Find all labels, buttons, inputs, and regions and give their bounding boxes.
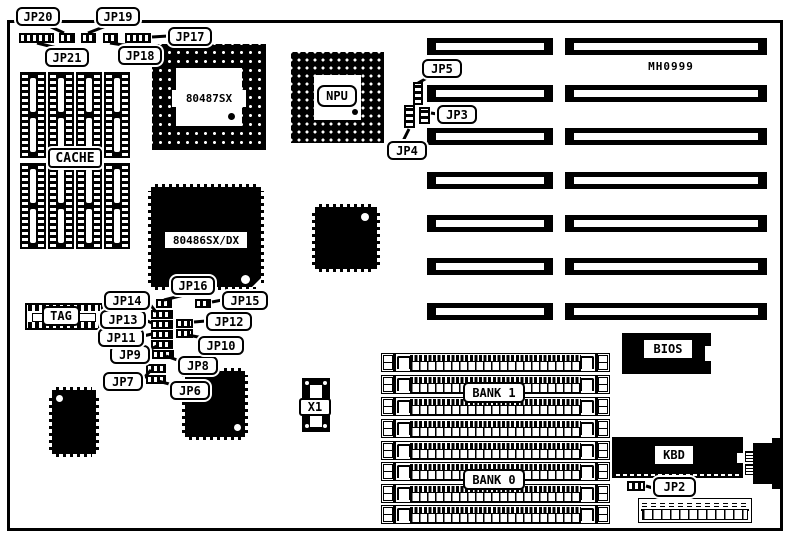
slot-opening bbox=[436, 263, 544, 270]
dip-pins bbox=[122, 165, 128, 247]
jumper-pins bbox=[83, 35, 94, 41]
dip-window bbox=[114, 78, 120, 112]
jumper-callout-jp3: JP3 bbox=[437, 105, 477, 124]
isa-slot-short bbox=[427, 38, 553, 55]
jumper-pins bbox=[21, 35, 52, 41]
cache-dip-chip bbox=[20, 163, 46, 249]
simm-end-hole bbox=[598, 450, 608, 458]
simm-latch bbox=[397, 356, 411, 369]
npu-socket: NPU bbox=[291, 52, 384, 143]
jumper-callout-jp14: JP14 bbox=[104, 291, 150, 310]
simm-module-cells bbox=[410, 449, 581, 459]
isa-slot-long bbox=[565, 258, 767, 275]
simm-end-bar bbox=[393, 354, 396, 371]
jumper-callout-jp13: JP13 bbox=[100, 310, 146, 329]
isa-slot-short bbox=[427, 85, 553, 102]
jumper-callout-jp10: JP10 bbox=[198, 336, 244, 355]
simm-end-bar bbox=[595, 354, 598, 371]
qfp-chip-bottom-left bbox=[52, 390, 96, 454]
cache-label: CACHE bbox=[48, 148, 102, 168]
jumper-callout-jp8: JP8 bbox=[178, 356, 218, 375]
simm-socket bbox=[381, 505, 610, 524]
keyboard-din-connector-flange bbox=[772, 438, 783, 489]
slot-opening bbox=[436, 43, 544, 50]
simm-latch bbox=[397, 465, 411, 478]
isa-slot-long bbox=[565, 303, 767, 320]
cache-dip-chip bbox=[76, 72, 102, 158]
isa-slot-short bbox=[427, 303, 553, 320]
simm-end-hole bbox=[598, 514, 608, 522]
simm-end-hole bbox=[598, 362, 608, 370]
kbd-label: KBD bbox=[655, 446, 693, 464]
simm-end-bar bbox=[595, 485, 598, 502]
simm-end-hole bbox=[383, 384, 393, 392]
jumper-pins bbox=[148, 377, 164, 382]
simm-end-bar bbox=[393, 506, 396, 523]
simm-end-bar bbox=[595, 398, 598, 415]
jumper-callout-jp16: JP16 bbox=[171, 276, 215, 295]
dip-window bbox=[58, 169, 64, 203]
simm-end-hole bbox=[383, 428, 393, 436]
jumper-block-jp9 bbox=[151, 340, 173, 349]
simm-end-hole bbox=[383, 362, 393, 370]
jumper-block-jp11 bbox=[151, 330, 173, 339]
isa-slot-long bbox=[565, 172, 767, 189]
simm-latch bbox=[580, 487, 594, 500]
dip-window bbox=[30, 118, 36, 152]
slot-opening bbox=[574, 133, 758, 140]
pin1-dot bbox=[352, 109, 358, 115]
jumper-callout-jp5: JP5 bbox=[422, 59, 462, 78]
simm-end-bar bbox=[393, 463, 396, 480]
dip-window bbox=[114, 118, 120, 152]
simm-end-bar bbox=[393, 398, 396, 415]
bottom-header-connector bbox=[638, 498, 752, 523]
dip-pins bbox=[106, 165, 112, 247]
simm-end-bar bbox=[595, 420, 598, 437]
simm-latch bbox=[397, 487, 411, 500]
slot-opening bbox=[574, 177, 758, 184]
pin1-dot bbox=[228, 113, 235, 120]
slot-opening bbox=[436, 177, 544, 184]
jumper-pins bbox=[153, 342, 171, 347]
simm-end-hole bbox=[598, 471, 608, 479]
simm-end-hole bbox=[383, 450, 393, 458]
dip-pins bbox=[38, 165, 44, 247]
jumper-block-jp20 bbox=[59, 33, 75, 43]
board-code-label: MH0999 bbox=[636, 60, 706, 73]
jumper-pins bbox=[148, 366, 164, 371]
jumper-callout-jp9: JP9 bbox=[110, 345, 150, 364]
jumper-block-jp6 bbox=[146, 375, 166, 384]
simm-end-bar bbox=[393, 376, 396, 393]
dip-pins bbox=[66, 165, 72, 247]
jumper-callout-jp7: JP7 bbox=[103, 372, 143, 391]
jumper-block-jp19 bbox=[81, 33, 96, 43]
jumper-pins bbox=[421, 109, 428, 122]
jumper-block-jp13 bbox=[151, 320, 173, 329]
simm-latch bbox=[580, 356, 594, 369]
bios-chip: BIOS bbox=[622, 333, 711, 374]
tag-label: TAG bbox=[42, 306, 80, 326]
simm-end-bar bbox=[393, 442, 396, 459]
simm-latch bbox=[580, 508, 594, 521]
jumper-callout-jp20: JP20 bbox=[16, 7, 60, 26]
simm-latch bbox=[397, 444, 411, 457]
dip-window bbox=[86, 118, 92, 152]
simm-end-bar bbox=[595, 376, 598, 393]
jumper-pins bbox=[158, 301, 170, 306]
isa-slot-short bbox=[427, 215, 553, 232]
simm-end-bar bbox=[393, 420, 396, 437]
jumper-block-jp17 bbox=[125, 33, 151, 43]
slot-opening bbox=[574, 220, 758, 227]
jumper-block-jp14 bbox=[151, 310, 173, 319]
dip-window bbox=[114, 209, 120, 243]
simm-latch bbox=[580, 465, 594, 478]
jumper-block-jp16 bbox=[156, 299, 172, 308]
dip-pins bbox=[22, 165, 28, 247]
pin1-dot bbox=[234, 424, 241, 431]
jumper-pins bbox=[629, 483, 643, 489]
dip-window bbox=[58, 78, 64, 112]
copro-socket-label: 80487SX bbox=[172, 90, 246, 107]
jumper-pins bbox=[153, 332, 171, 337]
crystal-label: X1 bbox=[299, 398, 331, 416]
slot-opening bbox=[574, 263, 758, 270]
jumper-block-jp4 bbox=[404, 105, 415, 128]
chip-notch bbox=[737, 453, 743, 463]
simm-end-hole bbox=[383, 514, 393, 522]
jumper-callout-jp19: JP19 bbox=[96, 7, 140, 26]
simm-end-hole bbox=[598, 493, 608, 501]
isa-slot-long bbox=[565, 128, 767, 145]
jumper-pins bbox=[178, 331, 191, 336]
jumper-block-jp8 bbox=[152, 350, 174, 359]
dip-pins bbox=[78, 165, 84, 247]
bios-label: BIOS bbox=[644, 340, 692, 358]
isa-slot-short bbox=[427, 172, 553, 189]
cache-dip-chip bbox=[48, 163, 74, 249]
slot-opening bbox=[574, 43, 758, 50]
dip-window bbox=[86, 169, 92, 203]
simm-latch bbox=[397, 378, 411, 391]
simm-socket bbox=[381, 441, 610, 460]
motherboard-diagram: MH0999 80487SX NPU 80486SX/DX TAG CAC bbox=[0, 0, 791, 540]
jumper-pins bbox=[153, 322, 171, 327]
cache-dip-chip bbox=[104, 163, 130, 249]
simm-end-bar bbox=[595, 463, 598, 480]
dip-window bbox=[86, 78, 92, 112]
jumper-callout-jp21: JP21 bbox=[45, 48, 89, 67]
isa-slot-long bbox=[565, 38, 767, 55]
jumper-pins bbox=[154, 352, 172, 357]
simm-latch bbox=[397, 508, 411, 521]
dip-pins bbox=[50, 165, 56, 247]
jumper-block-jp10 bbox=[176, 329, 193, 338]
jumper-pins bbox=[415, 84, 421, 103]
dip-pins bbox=[78, 74, 84, 156]
jumper-pins bbox=[178, 321, 191, 326]
isa-slot-short bbox=[427, 128, 553, 145]
simm-latch bbox=[397, 422, 411, 435]
jumper-callout-jp6: JP6 bbox=[170, 381, 210, 400]
jumper-block-jp7 bbox=[146, 364, 166, 373]
cpu-chip-pins bbox=[151, 187, 261, 287]
din-pin-tab bbox=[745, 451, 754, 462]
kbd-chip: KBD bbox=[612, 437, 743, 478]
cache-dip-chip bbox=[48, 72, 74, 158]
slot-opening bbox=[436, 133, 544, 140]
dip-window bbox=[30, 209, 36, 243]
dip-pins bbox=[106, 74, 112, 156]
jumper-callout-jp11: JP11 bbox=[98, 328, 144, 347]
jumper-block-jp21 bbox=[19, 33, 54, 43]
jumper-block-jp18 bbox=[103, 33, 118, 43]
bank0-label: BANK 0 bbox=[463, 469, 525, 490]
dip-pins bbox=[94, 165, 100, 247]
slot-opening bbox=[436, 308, 544, 315]
isa-slot-long bbox=[565, 215, 767, 232]
simm-module-cells bbox=[410, 427, 581, 437]
dip-window bbox=[30, 169, 36, 203]
jumper-block-jp3 bbox=[419, 107, 430, 124]
jumper-callout-jp18: JP18 bbox=[118, 46, 162, 65]
simm-end-hole bbox=[598, 428, 608, 436]
dip-window bbox=[58, 118, 64, 152]
simm-module-cells bbox=[410, 405, 581, 415]
dip-window bbox=[30, 78, 36, 112]
jumper-block-jp15 bbox=[195, 299, 211, 308]
simm-end-hole bbox=[383, 493, 393, 501]
npu-label: NPU bbox=[317, 85, 357, 107]
dip-pins bbox=[94, 74, 100, 156]
cache-dip-chip bbox=[20, 72, 46, 158]
qfp-chip-center bbox=[315, 207, 377, 269]
simm-end-bar bbox=[393, 485, 396, 502]
simm-end-hole bbox=[598, 406, 608, 414]
simm-module-cells bbox=[410, 513, 581, 523]
simm-end-bar bbox=[595, 442, 598, 459]
din-pin-tab bbox=[745, 464, 754, 475]
chip-notch bbox=[705, 346, 711, 361]
pin1-dot bbox=[56, 395, 63, 402]
copro-socket-80487sx: 80487SX bbox=[152, 44, 266, 150]
pin1-dot bbox=[361, 213, 369, 221]
dip-pins bbox=[66, 74, 72, 156]
simm-socket bbox=[381, 353, 610, 372]
jumper-pins bbox=[61, 35, 73, 41]
jumper-pins bbox=[105, 35, 116, 41]
simm-end-hole bbox=[383, 406, 393, 414]
jumper-pins bbox=[127, 35, 149, 41]
simm-end-bar bbox=[595, 506, 598, 523]
simm-latch bbox=[580, 422, 594, 435]
slot-opening bbox=[436, 90, 544, 97]
simm-latch bbox=[397, 400, 411, 413]
dip-pins bbox=[122, 74, 128, 156]
dip-window bbox=[58, 209, 64, 243]
simm-module-cells bbox=[410, 361, 581, 371]
jumper-pins bbox=[406, 107, 413, 126]
cache-dip-chip bbox=[76, 163, 102, 249]
simm-end-hole bbox=[598, 384, 608, 392]
jumper-block-jp12 bbox=[176, 319, 193, 328]
isa-slot-short bbox=[427, 258, 553, 275]
jumper-block-jp2 bbox=[627, 481, 645, 491]
jumper-callout-jp17: JP17 bbox=[168, 27, 212, 46]
simm-latch bbox=[580, 400, 594, 413]
dip-pins bbox=[22, 74, 28, 156]
dip-window bbox=[86, 209, 92, 243]
jumper-callout-jp2: JP2 bbox=[653, 477, 696, 497]
jumper-callout-jp12: JP12 bbox=[206, 312, 252, 331]
simm-latch bbox=[580, 378, 594, 391]
kbd-chip-pins bbox=[616, 474, 739, 476]
bank1-label: BANK 1 bbox=[463, 382, 525, 403]
simm-socket bbox=[381, 419, 610, 438]
jumper-callout-jp15: JP15 bbox=[222, 291, 268, 310]
jumper-pins bbox=[153, 312, 171, 317]
slot-opening bbox=[574, 90, 758, 97]
simm-latch bbox=[580, 444, 594, 457]
dip-pins bbox=[38, 74, 44, 156]
jumper-pins bbox=[197, 301, 209, 306]
jumper-callout-jp4: JP4 bbox=[387, 141, 427, 160]
dip-pins bbox=[50, 74, 56, 156]
jumper-block-jp5 bbox=[413, 82, 423, 105]
slot-opening bbox=[574, 308, 758, 315]
simm-end-hole bbox=[383, 471, 393, 479]
simm-module-cells bbox=[410, 492, 581, 502]
isa-slot-long bbox=[565, 85, 767, 102]
cache-dip-chip bbox=[104, 72, 130, 158]
dip-window bbox=[114, 169, 120, 203]
slot-opening bbox=[436, 220, 544, 227]
